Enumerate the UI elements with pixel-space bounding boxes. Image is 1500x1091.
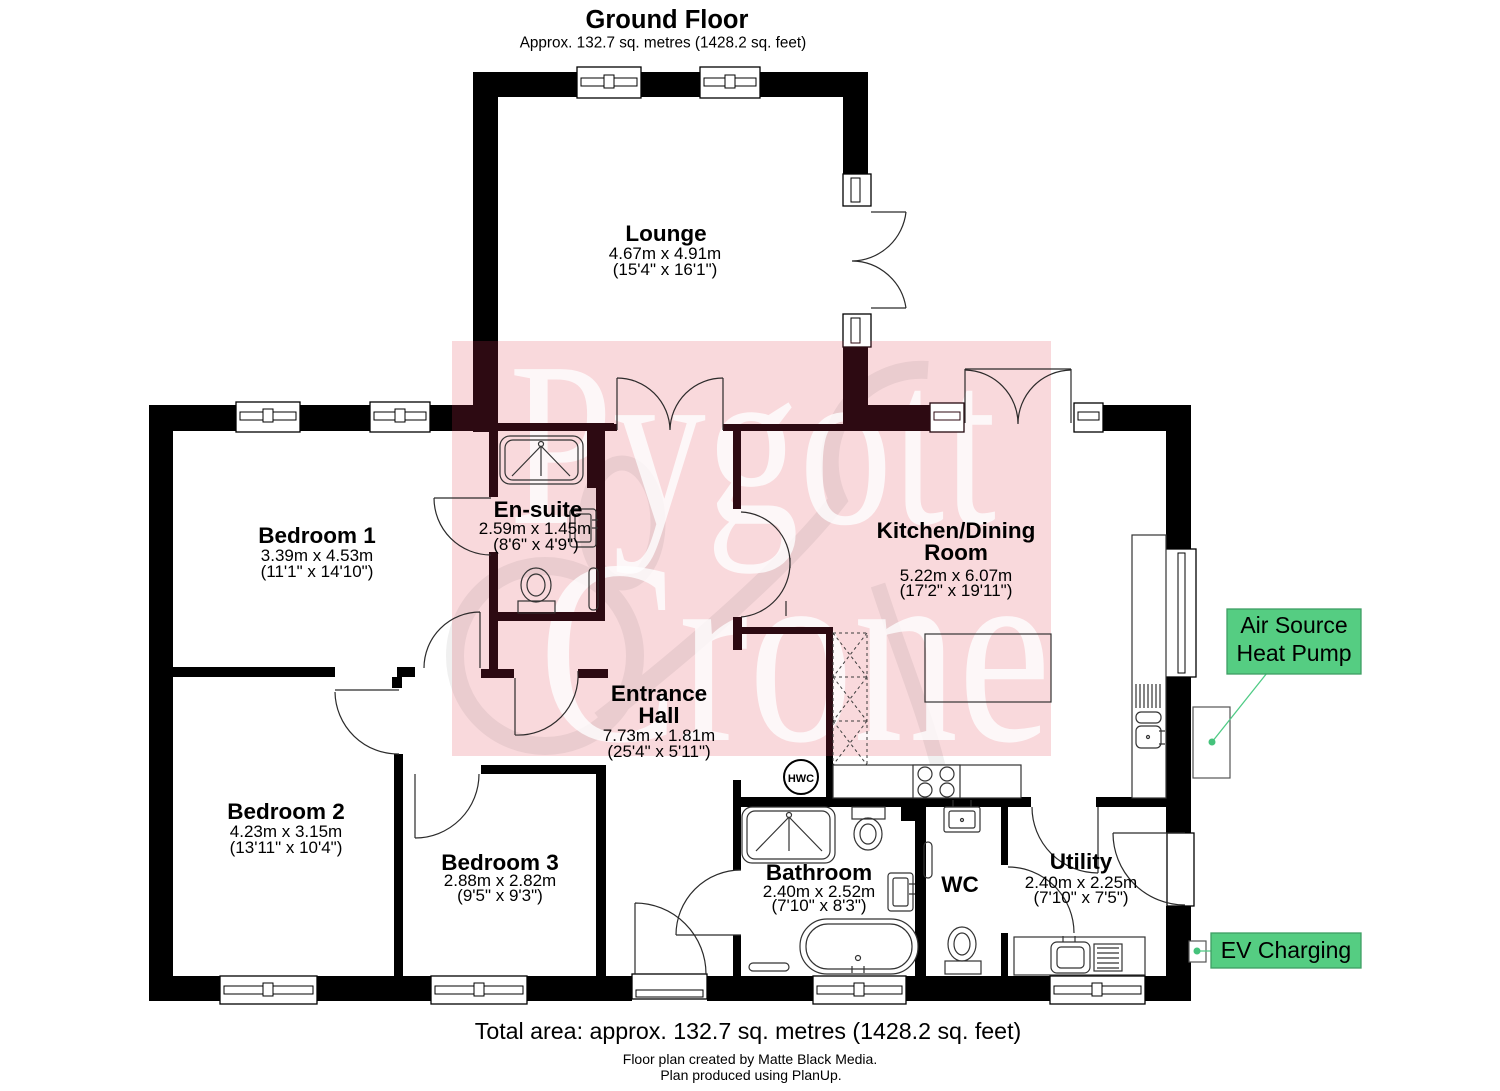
svg-text:Utility: Utility [1050,849,1113,874]
svg-text:Bedroom 2: Bedroom 2 [227,799,345,824]
svg-text:(17'2" x 19'11"): (17'2" x 19'11") [900,581,1013,600]
svg-text:WC: WC [941,872,979,897]
svg-text:(15'4" x 16'1"): (15'4" x 16'1") [613,260,718,279]
svg-text:Lounge: Lounge [625,221,706,246]
svg-text:Total area: approx. 132.7 sq.: Total area: approx. 132.7 sq. metres (14… [475,1018,1022,1044]
svg-text:(7'10" x 8'3"): (7'10" x 8'3") [771,896,866,915]
svg-text:Hall: Hall [638,703,679,728]
svg-text:Air Source: Air Source [1240,612,1347,638]
svg-text:(9'5" x 9'3"): (9'5" x 9'3") [457,886,543,905]
svg-text:(13'11" x 10'4"): (13'11" x 10'4") [230,838,343,857]
svg-text:EV Charging: EV Charging [1221,937,1351,963]
svg-text:(8'6" x 4'9"): (8'6" x 4'9") [493,535,579,554]
svg-text:Plan produced using PlanUp.: Plan produced using PlanUp. [660,1067,841,1083]
svg-text:(11'1" x 14'10"): (11'1" x 14'10") [261,562,374,581]
svg-text:Heat Pump: Heat Pump [1236,640,1351,666]
svg-text:Ground Floor: Ground Floor [586,6,749,34]
svg-text:Bedroom 1: Bedroom 1 [258,523,376,548]
svg-text:Floor plan created by Matte Bl: Floor plan created by Matte Black Media. [623,1051,877,1067]
svg-text:(25'4" x 5'11"): (25'4" x 5'11") [607,742,710,761]
svg-text:Room: Room [924,540,988,565]
svg-text:HWC: HWC [788,773,814,785]
svg-text:Approx. 132.7 sq. metres (1428: Approx. 132.7 sq. metres (1428.2 sq. fee… [520,35,807,52]
svg-text:(7'10" x 7'5"): (7'10" x 7'5") [1033,888,1128,907]
